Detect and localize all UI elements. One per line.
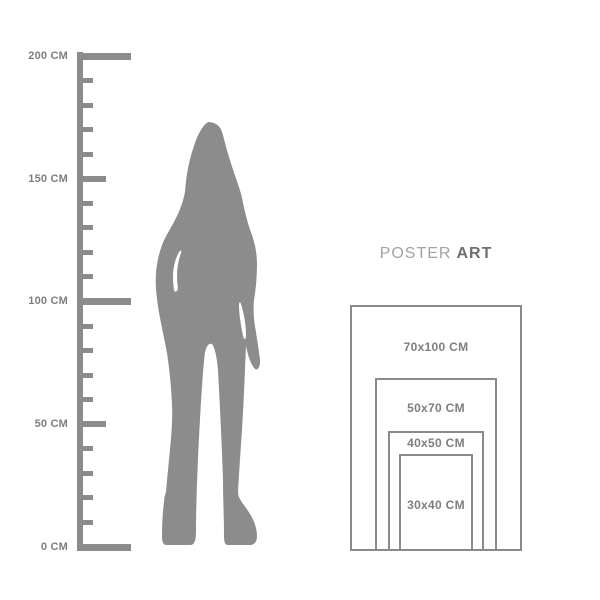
ruler-tick-50cm bbox=[77, 421, 106, 427]
ruler-tick-100cm bbox=[77, 298, 131, 305]
brand-logo: POSTERART bbox=[340, 245, 532, 263]
ruler-tick-150cm bbox=[77, 176, 106, 182]
ruler-tick-180cm bbox=[77, 103, 93, 108]
ruler-label-200cm: 200 CM bbox=[0, 49, 68, 63]
ruler-tick-20cm bbox=[77, 495, 93, 500]
ruler-label-0cm: 0 CM bbox=[0, 540, 68, 554]
woman-silhouette-icon bbox=[150, 118, 266, 550]
ruler-label-150cm: 150 CM bbox=[0, 172, 68, 186]
poster-size-label-50x70: 50x70 CM bbox=[350, 401, 522, 415]
ruler-tick-110cm bbox=[77, 274, 93, 279]
ruler-tick-190cm bbox=[77, 78, 93, 83]
ruler-tick-60cm bbox=[77, 397, 93, 402]
ruler-tick-80cm bbox=[77, 348, 93, 353]
poster-size-label-70x100: 70x100 CM bbox=[350, 340, 522, 354]
ruler-tick-200cm bbox=[77, 53, 131, 60]
ruler-tick-30cm bbox=[77, 471, 93, 476]
ruler-tick-130cm bbox=[77, 225, 93, 230]
ruler-tick-120cm bbox=[77, 250, 93, 255]
brand-word-light: POSTER bbox=[380, 245, 452, 262]
ruler-tick-170cm bbox=[77, 127, 93, 132]
ruler-tick-140cm bbox=[77, 201, 93, 206]
ruler-tick-160cm bbox=[77, 152, 93, 157]
ruler-tick-10cm bbox=[77, 520, 93, 525]
ruler-tick-70cm bbox=[77, 373, 93, 378]
brand-word-bold: ART bbox=[456, 245, 492, 262]
poster-size-label-40x50: 40x50 CM bbox=[350, 436, 522, 450]
ruler-tick-40cm bbox=[77, 446, 93, 451]
poster-size-guide: 200 CM 150 CM 100 CM 50 CM 0 CM POSTERAR… bbox=[0, 0, 600, 600]
ruler-tick-90cm bbox=[77, 324, 93, 329]
poster-size-label-30x40: 30x40 CM bbox=[350, 498, 522, 512]
ruler-label-50cm: 50 CM bbox=[0, 417, 68, 431]
ruler-tick-0cm bbox=[77, 544, 131, 551]
ruler-label-100cm: 100 CM bbox=[0, 294, 68, 308]
